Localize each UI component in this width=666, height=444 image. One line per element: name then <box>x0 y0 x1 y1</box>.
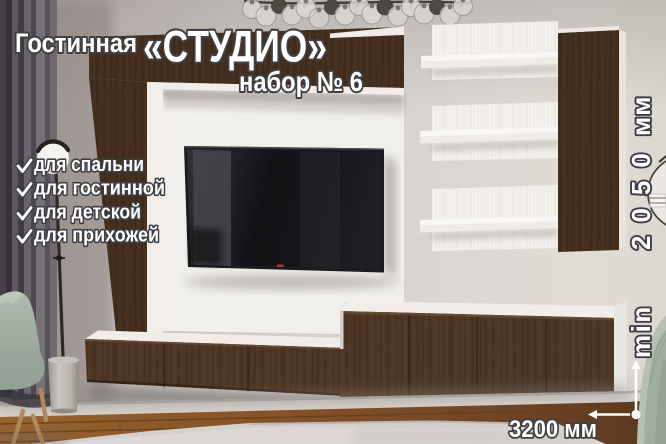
svg-text:min: min <box>626 304 656 358</box>
svg-text:набор № 6: набор № 6 <box>239 66 363 97</box>
svg-text:2050: 2050 <box>626 140 656 250</box>
svg-text:для прихожей: для прихожей <box>34 225 159 247</box>
svg-text:«СТУДИО»: «СТУДИО» <box>143 23 327 72</box>
svg-text:для детской: для детской <box>34 202 141 224</box>
svg-text:для спальни: для спальни <box>34 154 144 176</box>
svg-text:мм: мм <box>626 96 656 136</box>
svg-text:для гостинной: для гостинной <box>34 178 165 200</box>
svg-text:Гостинная: Гостинная <box>15 28 137 58</box>
svg-text:3200 мм: 3200 мм <box>509 416 597 443</box>
